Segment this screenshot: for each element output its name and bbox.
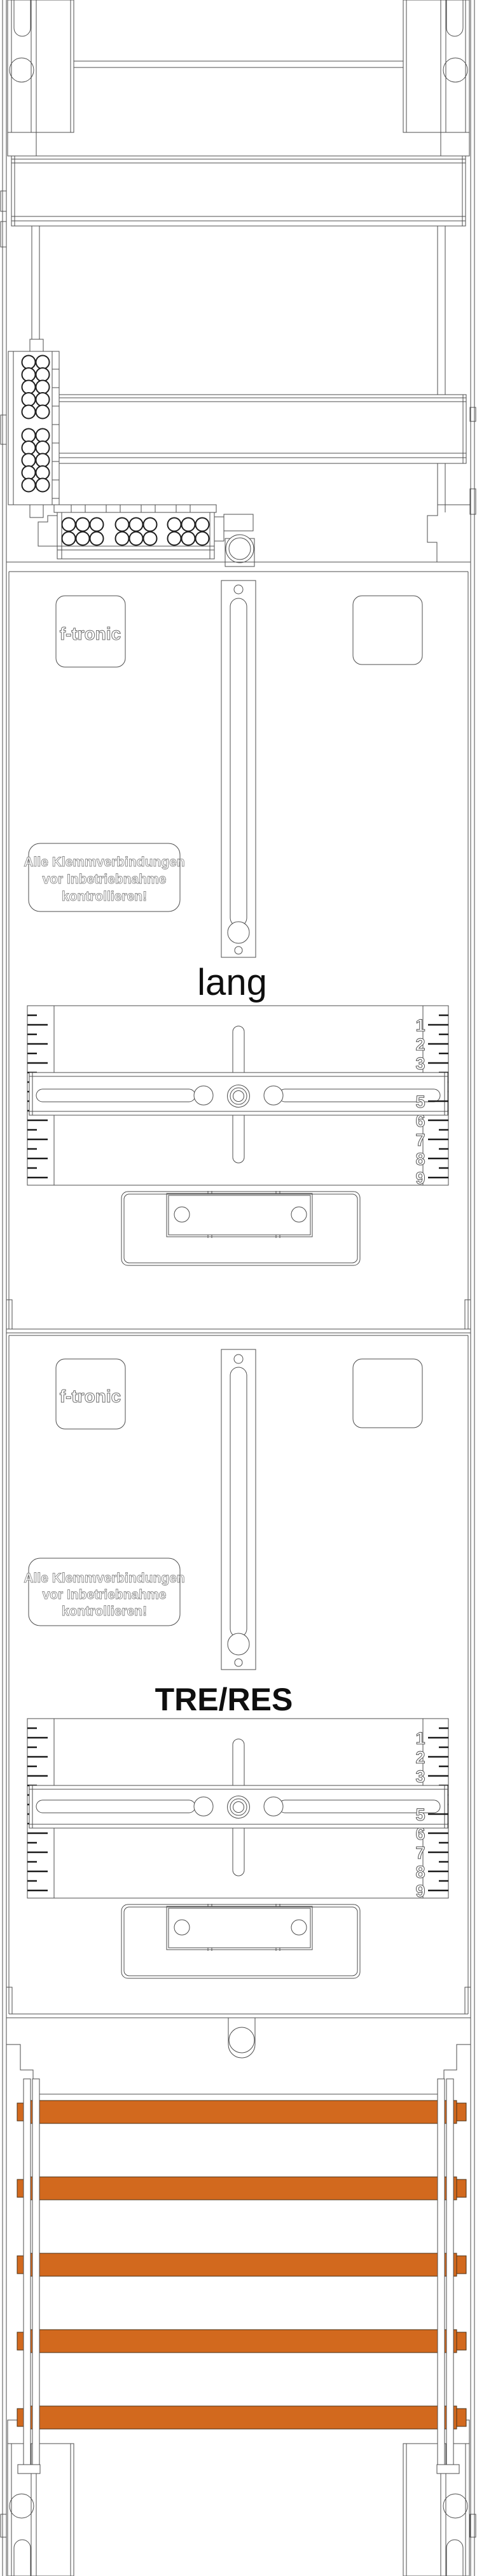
ruler-number: 9 xyxy=(415,1882,425,1901)
slider-position-number: 5 xyxy=(415,1805,425,1824)
slider-position-number: 5 xyxy=(415,1092,425,1111)
ruler-number: 1 xyxy=(415,1729,425,1748)
warning-line-2: vor Inbetriebnahme xyxy=(43,872,167,887)
keyhole-slot xyxy=(14,2540,31,2576)
slot-end-hole xyxy=(228,1633,249,1655)
busbar-2 xyxy=(17,2177,466,2200)
ruler-number: 3 xyxy=(415,1054,425,1073)
center-knob[interactable] xyxy=(228,1796,250,1819)
screw-hole xyxy=(174,1920,190,1935)
ruler-number: 7 xyxy=(415,1130,425,1150)
busbar-rail-left-inner xyxy=(32,2079,39,2468)
rail-foot-right xyxy=(437,2465,459,2474)
mounting-bracket-bottom-right xyxy=(403,2420,469,2576)
wall-latch xyxy=(1,222,6,247)
mounting-plate-1 xyxy=(121,1191,360,1265)
wall-latch xyxy=(1,191,6,211)
terminal-block-vertical xyxy=(8,339,59,517)
slot-end-hole xyxy=(264,1797,283,1816)
center-knob[interactable] xyxy=(228,1085,250,1108)
block-end-bracket-right xyxy=(214,517,224,541)
blank-plate xyxy=(353,1359,422,1428)
busbar-rail-right-inner xyxy=(438,2079,445,2468)
din-rail-2 xyxy=(59,395,466,463)
terminal-block-horizontal xyxy=(38,505,224,559)
warning-label-1: Alle Klemmverbindungen vor Inbetriebnahm… xyxy=(24,843,184,911)
warning-line-3: kontrollieren! xyxy=(62,1604,147,1619)
slider-crossbar-1[interactable]: 5 xyxy=(29,1073,448,1115)
warning-line-3: kontrollieren! xyxy=(62,889,147,904)
ruler-number: 2 xyxy=(415,1035,425,1054)
slot-end-hole xyxy=(228,922,249,943)
busbar-4 xyxy=(17,2330,466,2353)
slot-end-hole xyxy=(194,1086,213,1105)
screw-hole xyxy=(10,58,34,82)
top-section xyxy=(8,0,471,567)
terminal-holes xyxy=(62,518,209,545)
rail-foot-left xyxy=(18,2465,40,2474)
panel-1-label: lang xyxy=(197,962,267,1003)
busbar-5 xyxy=(17,2406,466,2429)
ruler-number: 1 xyxy=(415,1016,425,1035)
mounting-slot-bar-1 xyxy=(221,581,256,957)
screw-hole xyxy=(174,1207,190,1222)
brand-logo-text: f-tronic xyxy=(60,624,121,644)
warning-line-1: Alle Klemmverbindungen xyxy=(24,855,184,869)
wall-latch xyxy=(1,415,6,444)
ruler-number: 3 xyxy=(415,1767,425,1786)
busbar-1 xyxy=(17,2101,466,2123)
comb-rail-horizontal xyxy=(54,505,216,512)
brand-logo-text: f-tronic xyxy=(60,1386,121,1406)
mounting-bracket-bottom-left xyxy=(8,2420,74,2576)
screw-hole xyxy=(291,1207,307,1222)
busbar-section xyxy=(6,2018,471,2576)
slot-end-hole xyxy=(194,1797,213,1816)
ruler-assembly-1: 1 2 3 4 6 7 8 9 5 xyxy=(27,1006,448,1188)
ruler-number: 9 xyxy=(415,1169,425,1188)
busbars xyxy=(17,2101,466,2429)
panel-divider-1 xyxy=(6,1300,471,1333)
keyhole-slot xyxy=(14,0,31,36)
comb-rail-vertical xyxy=(52,351,59,505)
ruler-assembly-2: 1 2 3 4 6 7 8 9 5 xyxy=(27,1719,448,1901)
busbar-rail-right-outer xyxy=(446,2079,453,2468)
right-step-bracket xyxy=(427,505,471,562)
busbar-3 xyxy=(17,2253,466,2276)
center-screw-pocket xyxy=(228,2018,255,2058)
brand-plate: f-tronic xyxy=(56,596,125,667)
mounting-plate-2 xyxy=(121,1904,360,1978)
keyhole-slot xyxy=(446,2540,463,2576)
ruler-number: 2 xyxy=(415,1748,425,1767)
slider-crossbar-2[interactable]: 5 xyxy=(29,1785,448,1828)
warning-line-1: Alle Klemmverbindungen xyxy=(24,1571,184,1586)
screw-hole xyxy=(291,1920,307,1935)
cable-clamp xyxy=(224,514,254,567)
panel-2: f-tronic Alle Klemmverbindungen vor Inbe… xyxy=(6,1335,471,2018)
screw-hole xyxy=(443,2494,467,2518)
wall-latch xyxy=(1,2514,6,2537)
din-rail-1 xyxy=(11,156,466,226)
blank-plate xyxy=(353,596,422,665)
ruler-number: 8 xyxy=(415,1862,425,1882)
ruler-number: 7 xyxy=(415,1843,425,1862)
panel-1: f-tronic Alle Klemmverbindungen vor Inbe… xyxy=(6,562,471,1333)
block-end-bracket-left xyxy=(38,516,57,546)
screw-hole xyxy=(229,2027,254,2053)
cabinet-drawing: f-tronic Alle Klemmverbindungen vor Inbe… xyxy=(0,0,477,2576)
step-brackets xyxy=(6,2045,471,2094)
panel-divider-2 xyxy=(6,1987,471,2018)
busbar-rail-left-outer xyxy=(24,2079,31,2468)
brand-plate: f-tronic xyxy=(56,1359,125,1429)
warning-line-2: vor Inbetriebnahme xyxy=(43,1587,167,1602)
ruler-number: 8 xyxy=(415,1150,425,1169)
cabinet-wall-right xyxy=(470,0,476,2576)
screw-hole xyxy=(443,58,467,82)
screw-hole xyxy=(10,2494,34,2518)
slot-end-hole xyxy=(264,1086,283,1105)
top-lid-edge xyxy=(74,61,403,67)
keyhole-slot xyxy=(446,0,463,36)
mounting-slot-bar-2 xyxy=(221,1349,256,1670)
warning-label-2: Alle Klemmverbindungen vor Inbetriebnahm… xyxy=(24,1558,184,1626)
cabinet-wall-left xyxy=(1,0,6,2576)
panel-2-label: TRE/RES xyxy=(155,1682,293,1717)
